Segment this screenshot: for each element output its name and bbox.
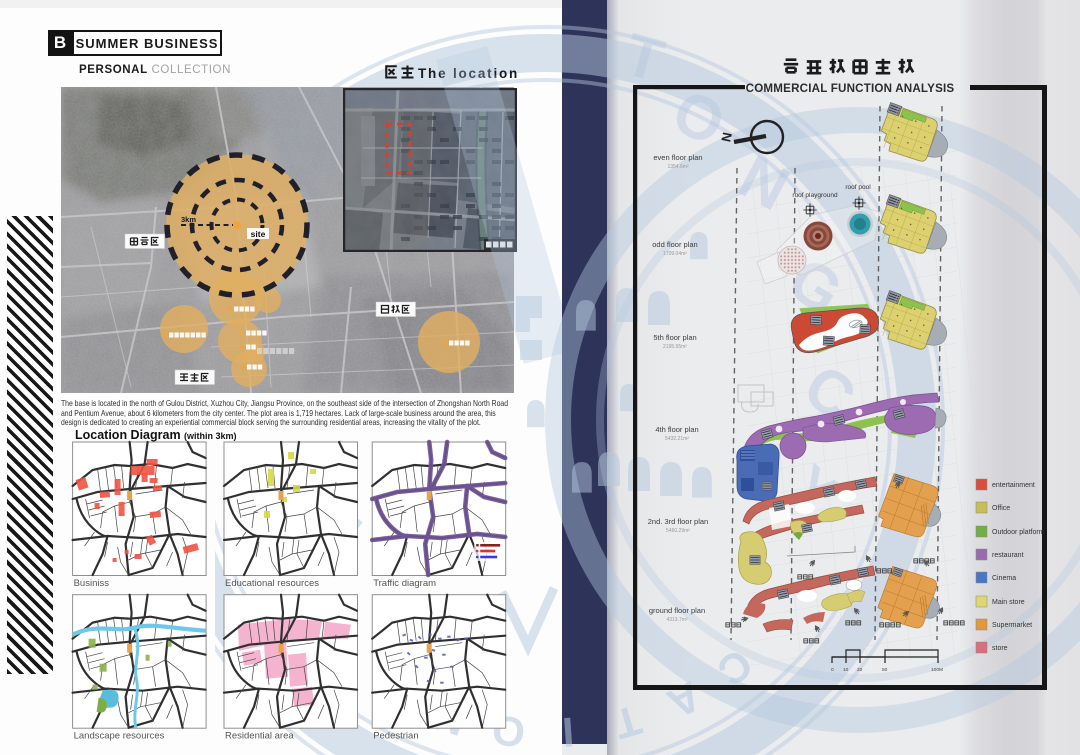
svg-text:Educational resources: Educational resources xyxy=(225,578,319,589)
svg-text:roof pool: roof pool xyxy=(845,184,871,191)
svg-text:Businiss: Businiss xyxy=(74,578,110,589)
svg-text:I: I xyxy=(561,709,576,755)
svg-text:even floor plan: even floor plan xyxy=(653,153,702,162)
svg-text:Supermarket: Supermarket xyxy=(992,622,1032,629)
svg-text:Residential area: Residential area xyxy=(225,731,294,742)
svg-text:100M: 100M xyxy=(931,667,943,673)
svg-text:Outdoor platform: Outdoor platform xyxy=(992,529,1045,536)
svg-text:Office: Office xyxy=(992,505,1010,512)
svg-text:2nd. 3rd floor plan: 2nd. 3rd floor plan xyxy=(648,517,708,526)
svg-text:20: 20 xyxy=(857,667,863,673)
svg-text:0: 0 xyxy=(831,667,834,673)
svg-text:restaurant: restaurant xyxy=(992,552,1024,559)
svg-text:10: 10 xyxy=(843,667,849,673)
svg-text:entertainment: entertainment xyxy=(992,482,1035,489)
svg-text:roof playground: roof playground xyxy=(792,192,838,199)
svg-text:Cinema: Cinema xyxy=(992,575,1016,582)
svg-text:5460.29m²: 5460.29m² xyxy=(666,528,690,534)
svg-text:ground floor plan: ground floor plan xyxy=(649,606,705,615)
svg-text:1709.04m²: 1709.04m² xyxy=(663,251,687,257)
svg-text:odd floor plan: odd floor plan xyxy=(652,240,697,249)
svg-text:4313.7m²: 4313.7m² xyxy=(666,617,687,623)
svg-text:Pedestrian: Pedestrian xyxy=(373,731,418,742)
svg-text:50: 50 xyxy=(882,667,888,673)
svg-text:Traffic diagram: Traffic diagram xyxy=(373,578,436,589)
svg-text:store: store xyxy=(992,645,1008,652)
svg-text:4th floor plan: 4th floor plan xyxy=(655,425,698,434)
svg-text:COMMERCIAL FUNCTION ANALYSIS: COMMERCIAL FUNCTION ANALYSIS xyxy=(746,82,955,95)
svg-text:Main store: Main store xyxy=(992,599,1025,606)
svg-text:5th floor plan: 5th floor plan xyxy=(653,333,696,342)
svg-text:N: N xyxy=(718,131,735,143)
svg-text:Landscape resources: Landscape resources xyxy=(74,731,165,742)
svg-text:1354.6m²: 1354.6m² xyxy=(667,164,688,170)
svg-text:5432.21m²: 5432.21m² xyxy=(665,436,689,442)
svg-text:2195.95m²: 2195.95m² xyxy=(663,344,687,350)
